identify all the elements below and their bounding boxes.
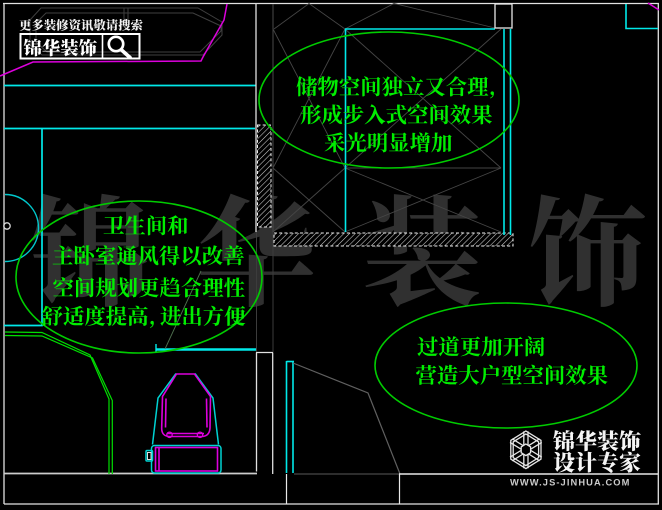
svg-text:WWW.JS-JINHUA.COM: WWW.JS-JINHUA.COM bbox=[510, 478, 630, 488]
